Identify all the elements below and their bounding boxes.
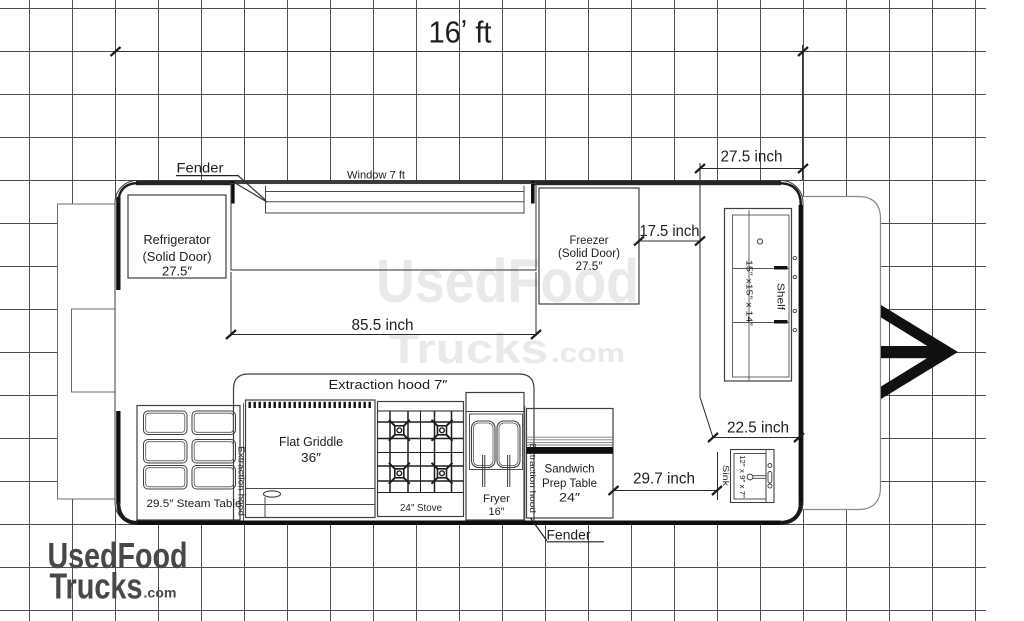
svg-text:15″ x15″ x 14″: 15″ x15″ x 14″ xyxy=(745,260,755,326)
svg-text:12″ x 9″ x 7″: 12″ x 9″ x 7″ xyxy=(738,455,747,498)
svg-text:85.5 inch: 85.5 inch xyxy=(352,317,414,334)
svg-text:24″: 24″ xyxy=(559,491,581,505)
svg-text:29.7 inch: 29.7 inch xyxy=(633,471,695,488)
svg-text:Window 7 ft: Window 7 ft xyxy=(347,170,405,182)
svg-text:16″: 16″ xyxy=(489,506,505,518)
svg-text:.com: .com xyxy=(144,586,177,601)
svg-text:27.5 inch: 27.5 inch xyxy=(721,149,783,166)
svg-text:Fryer: Fryer xyxy=(483,493,510,505)
svg-text:16ʼ ft: 16ʼ ft xyxy=(429,15,492,50)
svg-text:Fender: Fender xyxy=(177,161,225,176)
svg-text:(Solid Door): (Solid Door) xyxy=(143,249,212,264)
svg-text:Freezer: Freezer xyxy=(570,235,609,247)
svg-text:27.5″: 27.5″ xyxy=(162,264,192,279)
svg-text:Trucks: Trucks xyxy=(50,566,143,607)
svg-text:Fender: Fender xyxy=(547,528,592,543)
svg-text:Prep Table: Prep Table xyxy=(542,476,597,490)
svg-text:Flat Griddle: Flat Griddle xyxy=(279,435,343,449)
svg-text:(Solid Door): (Solid Door) xyxy=(558,248,620,260)
svg-text:17.5 inch: 17.5 inch xyxy=(640,223,700,240)
svg-text:22.5 inch: 22.5 inch xyxy=(727,420,789,437)
svg-text:27.5″: 27.5″ xyxy=(576,261,603,273)
svg-text:Shelf: Shelf xyxy=(775,283,787,310)
svg-text:Refrigerator: Refrigerator xyxy=(144,232,212,247)
svg-text:Sink: Sink xyxy=(721,465,731,487)
svg-text:Sandwich: Sandwich xyxy=(545,462,595,476)
svg-text:29.5″ Steam Table: 29.5″ Steam Table xyxy=(147,498,242,510)
svg-text:.com: .com xyxy=(551,338,625,368)
svg-text:36″: 36″ xyxy=(301,451,322,465)
svg-text:24″ Stove: 24″ Stove xyxy=(400,502,442,514)
svg-text:Extraction hood 7″: Extraction hood 7″ xyxy=(329,378,449,392)
